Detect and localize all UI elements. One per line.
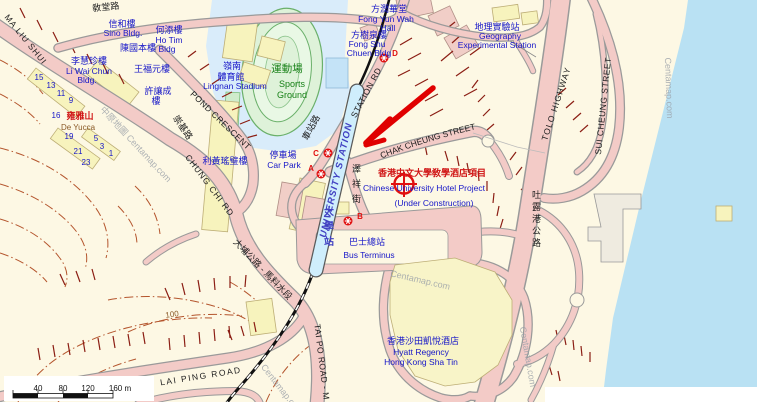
contour-elevation-label: 100 <box>165 309 180 320</box>
annotation-hotel-zh: 香港中文大學敎學酒店項目 <box>377 167 486 178</box>
label-fong-yun-wah-zh: 方潤華堂 <box>371 3 407 14</box>
exit-label-a: A <box>308 164 314 173</box>
house-number: 21 <box>74 147 83 156</box>
exit-label-c: C <box>313 149 319 158</box>
label-sports-ground-zh: 運動場 <box>271 62 303 75</box>
roundabout-sui-cheung <box>570 293 584 307</box>
scale-tick-160: 160 m <box>109 384 132 393</box>
house-number: 11 <box>57 89 66 98</box>
exit-icon-a <box>317 170 326 179</box>
label-bus-terminus-zh: 巴士總站 <box>349 236 385 247</box>
label-li-wai-chun-zh: 李慧珍樓 <box>71 55 107 66</box>
exit-label-b: B <box>357 212 363 221</box>
label-geography-en2: Experimental Station <box>458 40 537 50</box>
label-car-park-zh: 停車場 <box>269 149 296 160</box>
label-ho-tim-zh: 何添樓 <box>155 24 182 35</box>
road-label-chak-cheung-st-zh: 澤祥街 <box>351 164 361 209</box>
house-number: 1 <box>109 149 114 158</box>
annotation-hotel-en: Chinese University Hotel Project <box>363 183 486 193</box>
annotation-hotel-status: (Under Construction) <box>395 198 474 208</box>
label-yucca-no: 16 <box>52 111 61 120</box>
scale-bar: 40 80 120 160 m <box>4 376 154 401</box>
label-hyatt-zh: 香港沙田凱悅酒店 <box>387 335 459 346</box>
house-number: 15 <box>35 73 44 82</box>
house-number: 9 <box>69 96 74 105</box>
label-lingnan-zh1: 嶺南 <box>223 60 241 71</box>
label-car-park-en: Car Park <box>267 160 301 170</box>
label-wong-fuk-yuen: 王福元樓 <box>134 63 170 74</box>
exit-icon-b <box>344 217 353 226</box>
label-yucca-en: De Yucca <box>61 123 96 132</box>
label-hui-yeung-shing-2: 樓 <box>151 95 160 106</box>
label-ho-tim-en2: Bldg <box>158 44 175 54</box>
label-yucca-zh: 雍雅山 <box>66 110 93 121</box>
label-hui-yeung-shing-1: 許讓成 <box>144 85 171 96</box>
label-sports-ground-en2: Ground <box>277 90 307 100</box>
label-sino-bldg-en: Sino Bldg. <box>104 28 143 38</box>
house-number: 23 <box>82 158 91 167</box>
road-label-tolo-highway-zh: 吐露港公路 <box>531 190 541 250</box>
university-station-label-zh: 大學站 <box>322 205 334 251</box>
exit-label-d: D <box>392 49 398 58</box>
watermark: Centamap.com <box>663 57 675 118</box>
label-fong-shu-chuen-en2: Chuen Bldg <box>347 48 392 58</box>
house-number: 19 <box>65 132 74 141</box>
house-number: 5 <box>94 134 99 143</box>
label-chan-kwok-pun: 陳國本樓 <box>120 42 156 53</box>
label-li-wai-chun-en2: Bldg. <box>77 75 96 85</box>
exit-icon-c <box>324 149 333 158</box>
label-sports-ground-en1: Sports <box>279 79 306 89</box>
map-canvas[interactable]: C A B D MA LIU SHUI 敎堂路 STATION RD 車站路 P… <box>0 0 757 402</box>
house-number: 3 <box>100 142 105 151</box>
label-lingnan-en: Lingnan Stadium <box>203 81 267 91</box>
label-lee-wong-yiu-pik: 利黃瑤璧樓 <box>202 155 247 166</box>
label-bus-terminus-en: Bus Terminus <box>343 250 394 260</box>
pool <box>326 58 348 88</box>
label-hyatt-en2: Hong Kong Sha Tin <box>384 357 458 367</box>
house-number: 13 <box>47 81 56 90</box>
map-edge-blank <box>545 387 757 402</box>
label-hyatt-en1: Hyatt Regency <box>393 347 449 357</box>
